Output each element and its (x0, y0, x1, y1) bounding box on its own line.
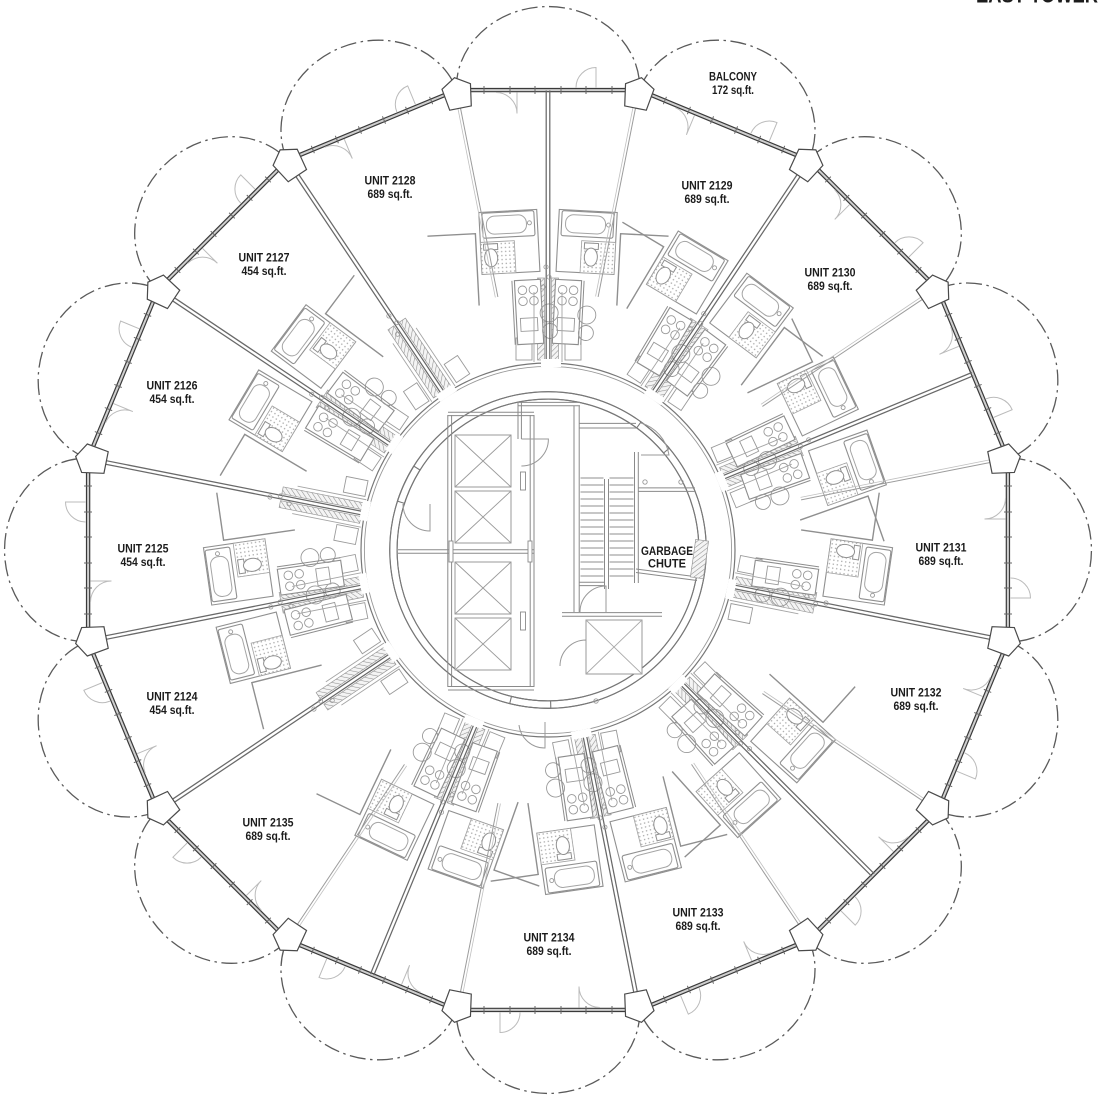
svg-text:UNIT 2129: UNIT 2129 (682, 179, 733, 193)
svg-text:UNIT 2128: UNIT 2128 (365, 174, 416, 188)
svg-text:454 sq.ft.: 454 sq.ft. (121, 555, 166, 569)
svg-text:454 sq.ft.: 454 sq.ft. (242, 264, 287, 278)
svg-text:689 sq.ft.: 689 sq.ft. (246, 829, 291, 843)
svg-text:689 sq.ft.: 689 sq.ft. (685, 192, 730, 206)
svg-text:UNIT 2124: UNIT 2124 (147, 690, 198, 704)
svg-text:UNIT 2133: UNIT 2133 (673, 906, 724, 920)
svg-text:689 sq.ft.: 689 sq.ft. (527, 944, 572, 958)
svg-text:UNIT 2127: UNIT 2127 (239, 251, 290, 265)
svg-text:GARBAGE: GARBAGE (641, 546, 693, 558)
svg-text:689 sq.ft.: 689 sq.ft. (368, 187, 413, 201)
svg-text:689 sq.ft.: 689 sq.ft. (894, 699, 939, 713)
svg-text:UNIT 2126: UNIT 2126 (147, 379, 198, 393)
svg-text:CHUTE: CHUTE (648, 559, 686, 571)
svg-text:UNIT 2125: UNIT 2125 (118, 542, 169, 556)
svg-text:EAST TOWER: EAST TOWER (976, 0, 1098, 8)
svg-text:UNIT 2130: UNIT 2130 (805, 266, 856, 280)
svg-text:454 sq.ft.: 454 sq.ft. (150, 703, 195, 717)
svg-text:689 sq.ft.: 689 sq.ft. (676, 919, 721, 933)
svg-text:689 sq.ft.: 689 sq.ft. (808, 279, 853, 293)
svg-text:UNIT 2132: UNIT 2132 (891, 686, 942, 700)
svg-text:UNIT 2135: UNIT 2135 (243, 816, 294, 830)
svg-text:BALCONY: BALCONY (709, 70, 757, 84)
svg-text:689 sq.ft.: 689 sq.ft. (919, 554, 964, 568)
svg-text:172 sq.ft.: 172 sq.ft. (712, 83, 754, 97)
svg-text:454 sq.ft.: 454 sq.ft. (150, 392, 195, 406)
svg-text:UNIT 2134: UNIT 2134 (524, 931, 575, 945)
svg-text:UNIT 2131: UNIT 2131 (916, 541, 967, 555)
